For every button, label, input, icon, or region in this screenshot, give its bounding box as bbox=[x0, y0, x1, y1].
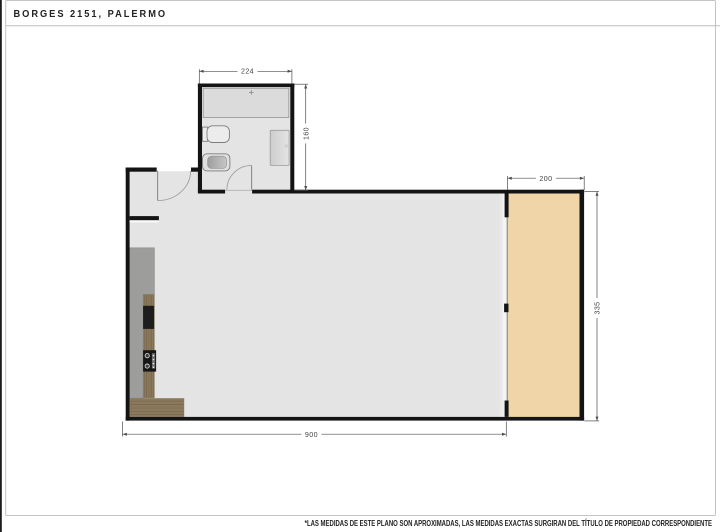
svg-text:900: 900 bbox=[305, 431, 318, 439]
svg-text:224: 224 bbox=[241, 68, 254, 76]
svg-text:*LAS MEDIDAS DE ESTE PLANO SON: *LAS MEDIDAS DE ESTE PLANO SON APROXIMAD… bbox=[305, 518, 713, 528]
svg-text:200: 200 bbox=[539, 175, 552, 183]
svg-text:335: 335 bbox=[594, 301, 602, 314]
svg-text:160: 160 bbox=[302, 127, 310, 140]
svg-text:BORGES 2151, PALERMO: BORGES 2151, PALERMO bbox=[14, 9, 168, 21]
